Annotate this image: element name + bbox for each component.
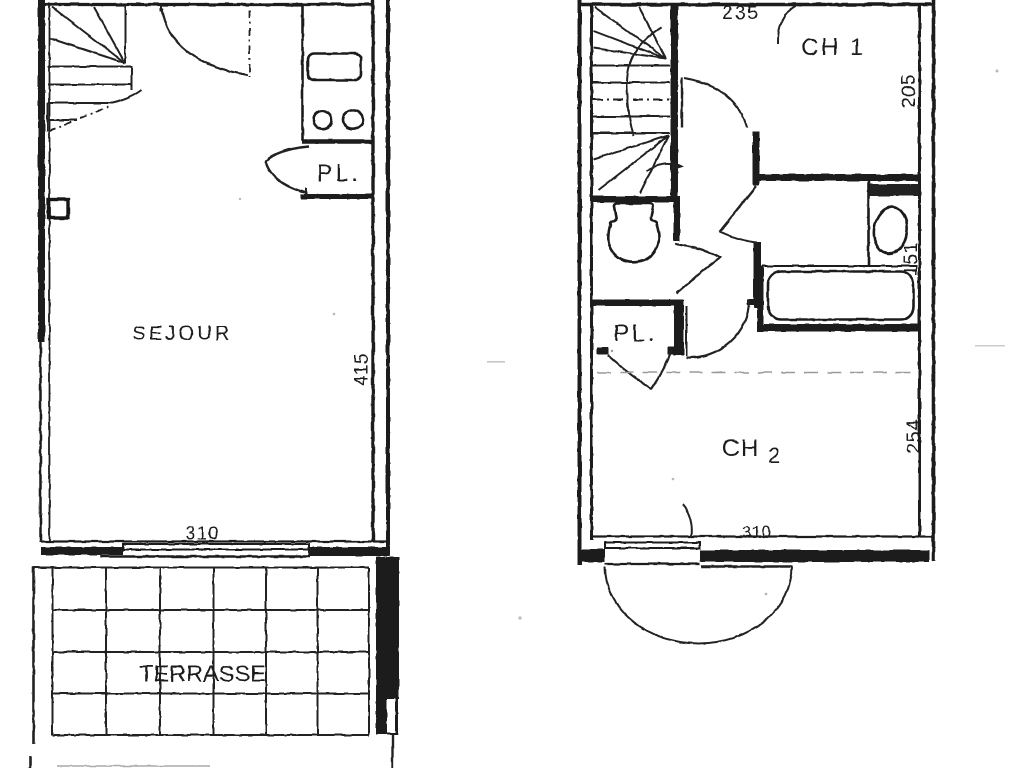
svg-text:PL.: PL. (317, 160, 361, 187)
svg-text:254: 254 (903, 419, 925, 454)
svg-text:205: 205 (898, 74, 920, 108)
svg-text:PL.: PL. (613, 320, 657, 347)
svg-text:CH 1: CH 1 (801, 34, 866, 61)
svg-text:310: 310 (742, 522, 771, 542)
svg-text:235: 235 (722, 3, 760, 24)
svg-text:SEJOUR: SEJOUR (132, 323, 232, 345)
svg-text:415: 415 (352, 353, 373, 386)
svg-text:TERRASSE: TERRASSE (139, 661, 266, 687)
